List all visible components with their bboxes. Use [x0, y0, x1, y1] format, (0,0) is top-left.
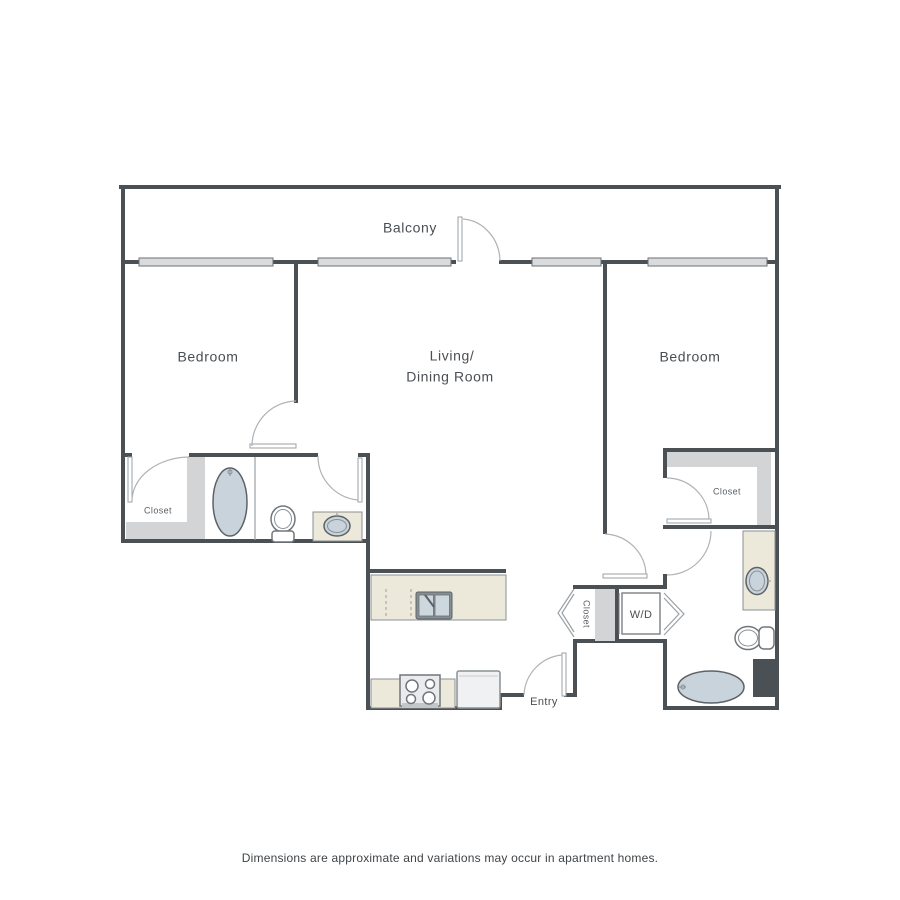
- bedroom-left-label: Bedroom: [177, 349, 238, 365]
- entry-closet-shelf: [595, 589, 615, 641]
- floor-plan: Balcony Bedroom Living/ Dining Room Bedr…: [0, 0, 900, 900]
- closet1-door-leaf: [128, 457, 132, 502]
- entry-closet-bifold-outer: [558, 589, 574, 637]
- stove-burner-1: [406, 680, 418, 692]
- living-label-line1: Living/: [430, 348, 475, 364]
- hall-door-leaf: [603, 574, 647, 578]
- kitchen-sink-basin-right: [435, 595, 450, 616]
- closet1-door-arc: [132, 457, 189, 501]
- hall-door-arc: [605, 534, 646, 574]
- entry-label: Entry: [530, 696, 558, 708]
- stove-base: [402, 703, 438, 708]
- bedroom2-door-arc: [667, 531, 711, 575]
- entry-door-leaf: [562, 653, 566, 696]
- closet2-door-arc: [667, 478, 709, 519]
- disclaimer-text: Dimensions are approximate and variation…: [242, 851, 658, 865]
- stove-burner-2: [426, 680, 435, 689]
- floor-plan-drawing: Balcony Bedroom Living/ Dining Room Bedr…: [0, 0, 900, 900]
- entry-closet-bifold-inner: [562, 594, 574, 632]
- bath1-door-leaf: [358, 458, 362, 502]
- window-bedroom2: [648, 258, 767, 266]
- washer-dryer-label: W/D: [630, 609, 653, 621]
- closet2-shelf-top: [667, 452, 771, 467]
- window-living: [318, 258, 451, 266]
- window-bedroom1: [139, 258, 273, 266]
- balcony-door-leaf: [458, 217, 462, 261]
- toilet2-tank: [759, 627, 774, 649]
- bath2-chase: [753, 659, 777, 697]
- balcony-door-arc: [463, 219, 500, 261]
- closet1-shelf-right: [187, 457, 205, 539]
- bathtub2: [678, 671, 744, 703]
- stove-burner-4: [423, 692, 435, 704]
- closet-right-label: Closet: [713, 486, 741, 496]
- wd-bifold-outer: [664, 593, 684, 635]
- balcony-label: Balcony: [383, 220, 437, 236]
- wd-bifold-inner: [664, 598, 679, 630]
- bath1-door-arc: [318, 456, 358, 500]
- closet-left-label: Closet: [144, 505, 172, 515]
- toilet1-tank: [272, 531, 294, 542]
- closet2-shelf-right: [757, 452, 771, 525]
- entry-door-arc: [524, 655, 562, 695]
- bedroom-right-label: Bedroom: [659, 349, 720, 365]
- window-living-east: [532, 258, 601, 266]
- living-label-line2: Dining Room: [406, 369, 494, 385]
- closet2-door-leaf: [667, 519, 711, 523]
- bedroom1-door-leaf: [250, 444, 296, 448]
- bedroom1-door-arc: [252, 401, 296, 446]
- stove-burner-3: [407, 695, 416, 704]
- bathtub1: [213, 468, 247, 536]
- closet-entry-label: Closet: [582, 600, 592, 628]
